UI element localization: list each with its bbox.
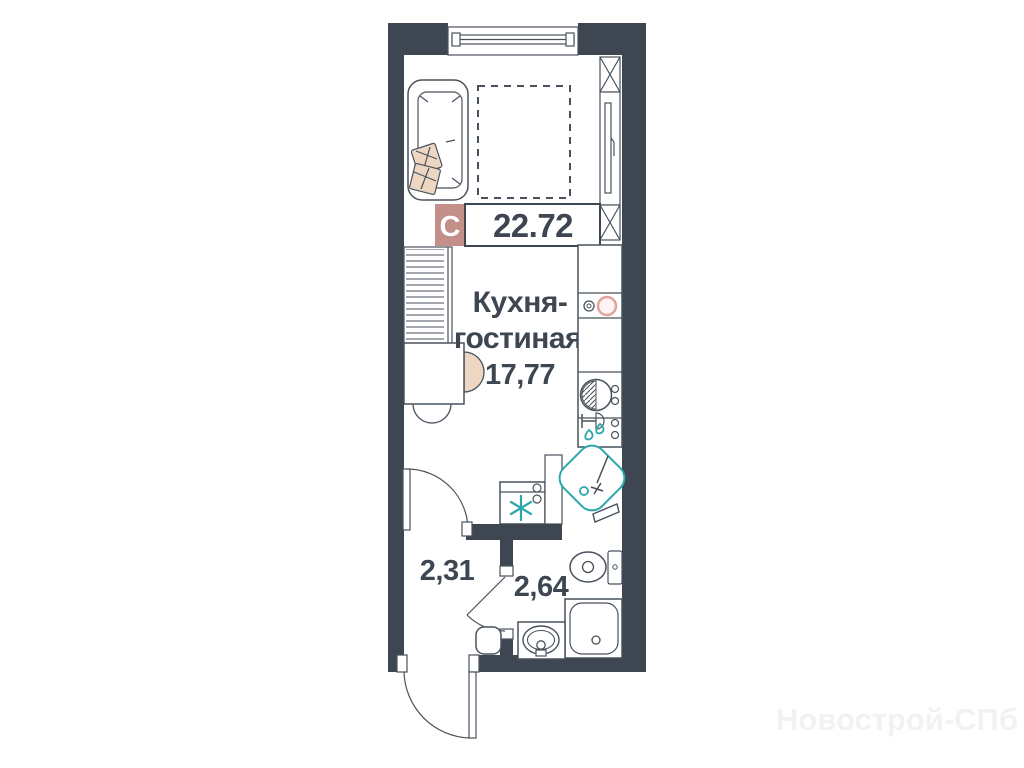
entrance-door [397, 655, 479, 738]
dining-table [404, 343, 484, 423]
type-badge: С 22.72 [435, 204, 600, 246]
wardrobe [404, 247, 452, 345]
kitchen-area-label: 17,77 [485, 359, 555, 391]
svg-text:гостиная: гостиная [454, 322, 582, 355]
bed-outline [478, 86, 570, 198]
vent-shaft-upper [600, 57, 620, 92]
vent-shaft-lower [600, 205, 620, 240]
kitchen-counter [578, 245, 622, 447]
floor-plan-page: С 22.72 Кухня- гостиная 17,77 [0, 0, 1024, 768]
kitchen-door [403, 469, 472, 536]
toilet [570, 551, 622, 584]
cooktop-burner-large [598, 297, 616, 315]
fridge [500, 482, 545, 524]
type-label: С [440, 211, 461, 243]
chair-bottom [413, 404, 451, 423]
hallway-area-label: 2,31 [420, 555, 475, 587]
partition-kitchen-shower [545, 455, 562, 524]
bathroom-area-label: 2,64 [514, 571, 569, 603]
shaft-panel [600, 92, 620, 205]
hallway-ottoman [476, 627, 501, 654]
floor-plan: С 22.72 Кухня- гостиная 17,77 [0, 0, 1024, 768]
total-area-label: 22.72 [493, 207, 573, 244]
shower-tray [554, 440, 630, 516]
bathtub [565, 599, 622, 658]
washbasin [518, 622, 565, 659]
svg-text:Кухня-: Кухня- [473, 286, 568, 319]
interior-wall-kitchen-hall [466, 524, 562, 540]
window-glazing [452, 33, 574, 46]
chair-right [464, 352, 484, 392]
watermark: Новострой-СПб [776, 702, 1018, 737]
window [448, 27, 578, 55]
sofa [408, 80, 468, 200]
